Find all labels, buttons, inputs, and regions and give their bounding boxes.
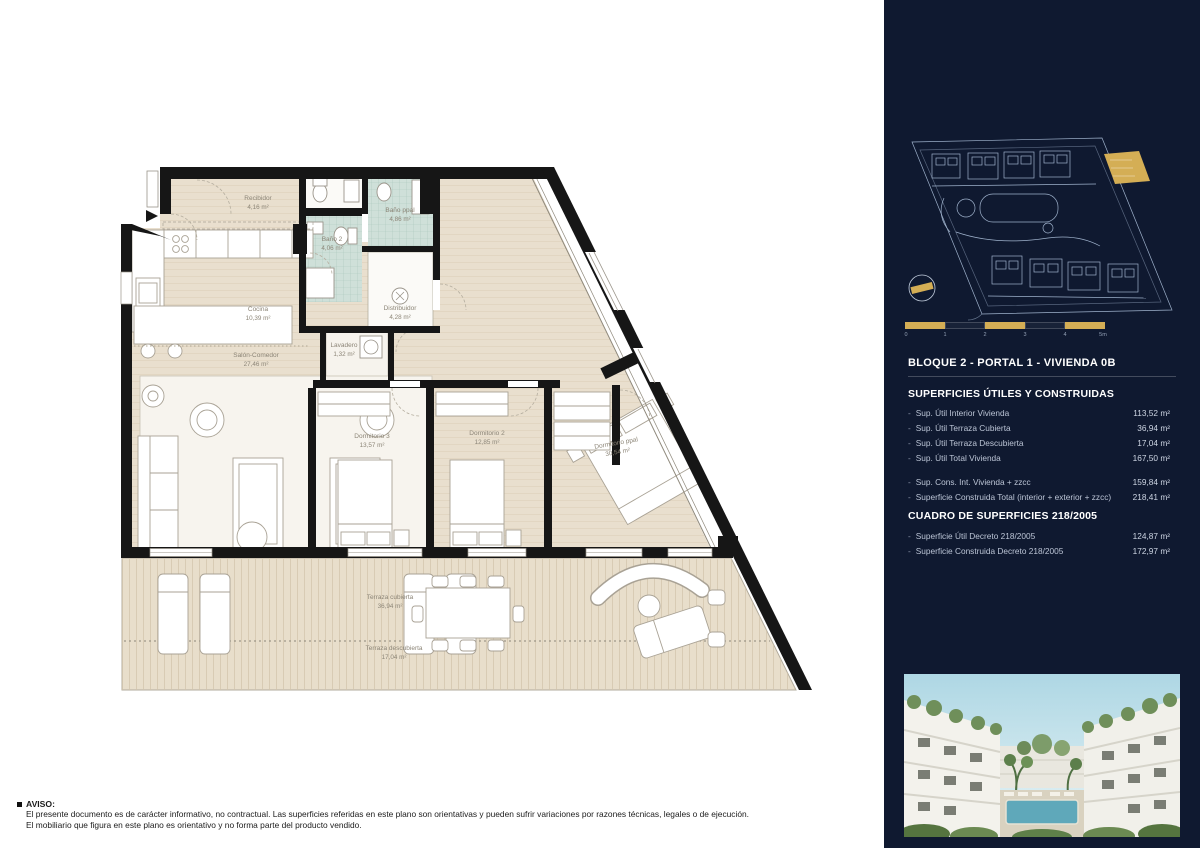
label-cocina: Cocina bbox=[248, 306, 269, 313]
label-dorm3: Dormitorio 3 bbox=[354, 433, 390, 440]
surface-row: Sup. Útil Terraza Descubierta17,04 m² bbox=[908, 436, 1170, 451]
svg-text:4,16 m²: 4,16 m² bbox=[247, 204, 268, 211]
surface-row: Superficie Construida Decreto 218/200517… bbox=[908, 544, 1170, 559]
cuadro-rows: Superficie Útil Decreto 218/2005124,87 m… bbox=[908, 529, 1170, 559]
building-render-image bbox=[904, 674, 1180, 837]
svg-text:17,04 m²: 17,04 m² bbox=[382, 654, 407, 661]
label-recibidor: Recibidor bbox=[244, 195, 272, 202]
svg-text:36,94 m²: 36,94 m² bbox=[378, 603, 403, 610]
label-terraza-cubierta: Terraza cubierta bbox=[367, 594, 414, 601]
scale-bar: 0 1 2 3 4 5m bbox=[905, 322, 1105, 340]
label-salon: Salón-Comedor bbox=[233, 352, 279, 359]
svg-text:4,28 m²: 4,28 m² bbox=[389, 314, 410, 321]
scale-label: 3 bbox=[1023, 332, 1026, 338]
label-banoppal: Baño ppal bbox=[385, 207, 415, 214]
svg-text:1,32 m²: 1,32 m² bbox=[333, 351, 354, 358]
scale-label: 4 bbox=[1063, 332, 1066, 338]
disclaimer-line2: El mobiliario que figura en este plano e… bbox=[26, 820, 867, 831]
scale-seg bbox=[1065, 322, 1105, 329]
label-dorm2: Dormitorio 2 bbox=[469, 430, 505, 437]
site-key-plan bbox=[896, 128, 1188, 324]
svg-text:13,57 m²: 13,57 m² bbox=[360, 442, 385, 449]
scale-label: 0 bbox=[904, 332, 907, 338]
svg-text:27,46 m²: 27,46 m² bbox=[244, 361, 269, 368]
floorplan-drawing: Recibidor 4,16 m² Baño ppal 4,86 m² Baño… bbox=[0, 0, 884, 848]
label-terraza-descubierta: Terraza descubierta bbox=[365, 645, 422, 652]
svg-text:10,39 m²: 10,39 m² bbox=[246, 315, 271, 322]
svg-text:4,06 m²: 4,06 m² bbox=[321, 245, 342, 252]
bullet-square-icon bbox=[17, 802, 22, 807]
scale-seg bbox=[945, 322, 985, 329]
surface-row: Superficie Útil Decreto 218/2005124,87 m… bbox=[908, 529, 1170, 544]
surface-row: Sup. Útil Interior Vivienda113,52 m² bbox=[908, 406, 1170, 421]
label-bano2: Baño 2 bbox=[322, 236, 343, 243]
page: { "colors": { "navy": "#0f1930", "gold":… bbox=[0, 0, 1200, 848]
surface-row: Sup. Cons. Int. Vivienda + zzcc159,84 m² bbox=[908, 475, 1170, 490]
scale-label: 5m bbox=[1099, 332, 1107, 338]
superficies-section-title: SUPERFICIES ÚTILES Y CONSTRUIDAS bbox=[908, 388, 1176, 400]
label-distribuidor: Distribuidor bbox=[384, 305, 418, 312]
superficies-rows: Sup. Útil Interior Vivienda113,52 m² Sup… bbox=[908, 406, 1170, 505]
svg-text:4,86 m²: 4,86 m² bbox=[389, 216, 410, 223]
disclaimer-title: AVISO: bbox=[26, 799, 55, 809]
compass-icon bbox=[909, 275, 935, 301]
surface-row: Sup. Útil Terraza Cubierta36,94 m² bbox=[908, 421, 1170, 436]
scale-label: 1 bbox=[943, 332, 946, 338]
info-sidebar: 0 1 2 3 4 5m BLOQUE 2 - PORTAL 1 - VIVIE… bbox=[884, 0, 1200, 848]
unit-title: BLOQUE 2 - PORTAL 1 - VIVIENDA 0B bbox=[908, 357, 1176, 377]
svg-text:12,85 m²: 12,85 m² bbox=[475, 439, 500, 446]
floorplan-sheet: Recibidor 4,16 m² Baño ppal 4,86 m² Baño… bbox=[0, 0, 884, 848]
scale-seg bbox=[985, 322, 1025, 329]
highlighted-unit bbox=[1104, 151, 1150, 184]
disclaimer-line1: El presente documento es de carácter inf… bbox=[26, 809, 867, 820]
disclaimer: AVISO: El presente documento es de carác… bbox=[17, 799, 867, 830]
scale-seg bbox=[905, 322, 945, 329]
scale-label: 2 bbox=[983, 332, 986, 338]
surface-row: Superficie Construida Total (interior + … bbox=[908, 490, 1170, 505]
scale-seg bbox=[1025, 322, 1065, 329]
surface-row: Sup. Útil Total Vivienda167,50 m² bbox=[908, 451, 1170, 466]
cuadro-section-title: CUADRO DE SUPERFICIES 218/2005 bbox=[908, 510, 1176, 522]
label-lavadero: Lavadero bbox=[330, 342, 357, 349]
